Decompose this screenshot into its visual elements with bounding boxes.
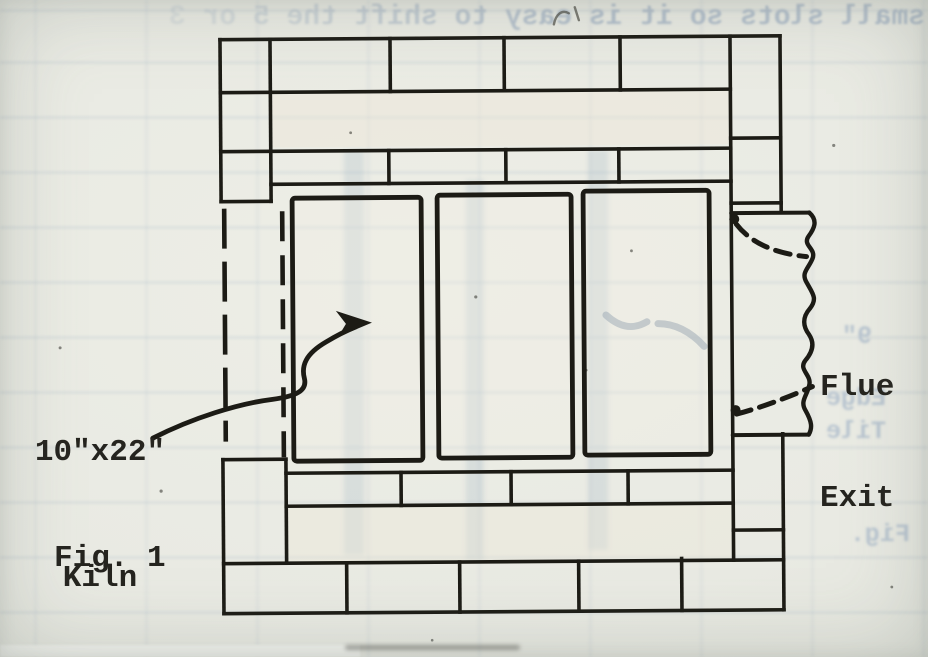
scanned-document-page: small slots so it is easy to shift the 5… xyxy=(0,0,928,657)
pencil-scribble xyxy=(554,7,579,24)
figure-caption: Fig. 1 xyxy=(54,541,166,576)
flue-exit-outline xyxy=(729,213,816,436)
flue-exit-label-line1: Flue xyxy=(820,369,894,406)
flue-exit-label: Flue Exit xyxy=(820,295,894,591)
kiln-shelf-label: 10"x22" Kiln Shelf xyxy=(24,348,176,657)
kiln-shelf xyxy=(437,194,573,458)
kiln-shelf-label-line1: 10"x22" xyxy=(24,432,176,474)
paper-edge-highlight xyxy=(0,645,360,657)
flue-exit-label-line2: Exit xyxy=(820,480,894,517)
door-opening-dashed xyxy=(224,208,284,457)
ink-smudge xyxy=(345,645,520,650)
kiln-shelf xyxy=(292,197,423,461)
